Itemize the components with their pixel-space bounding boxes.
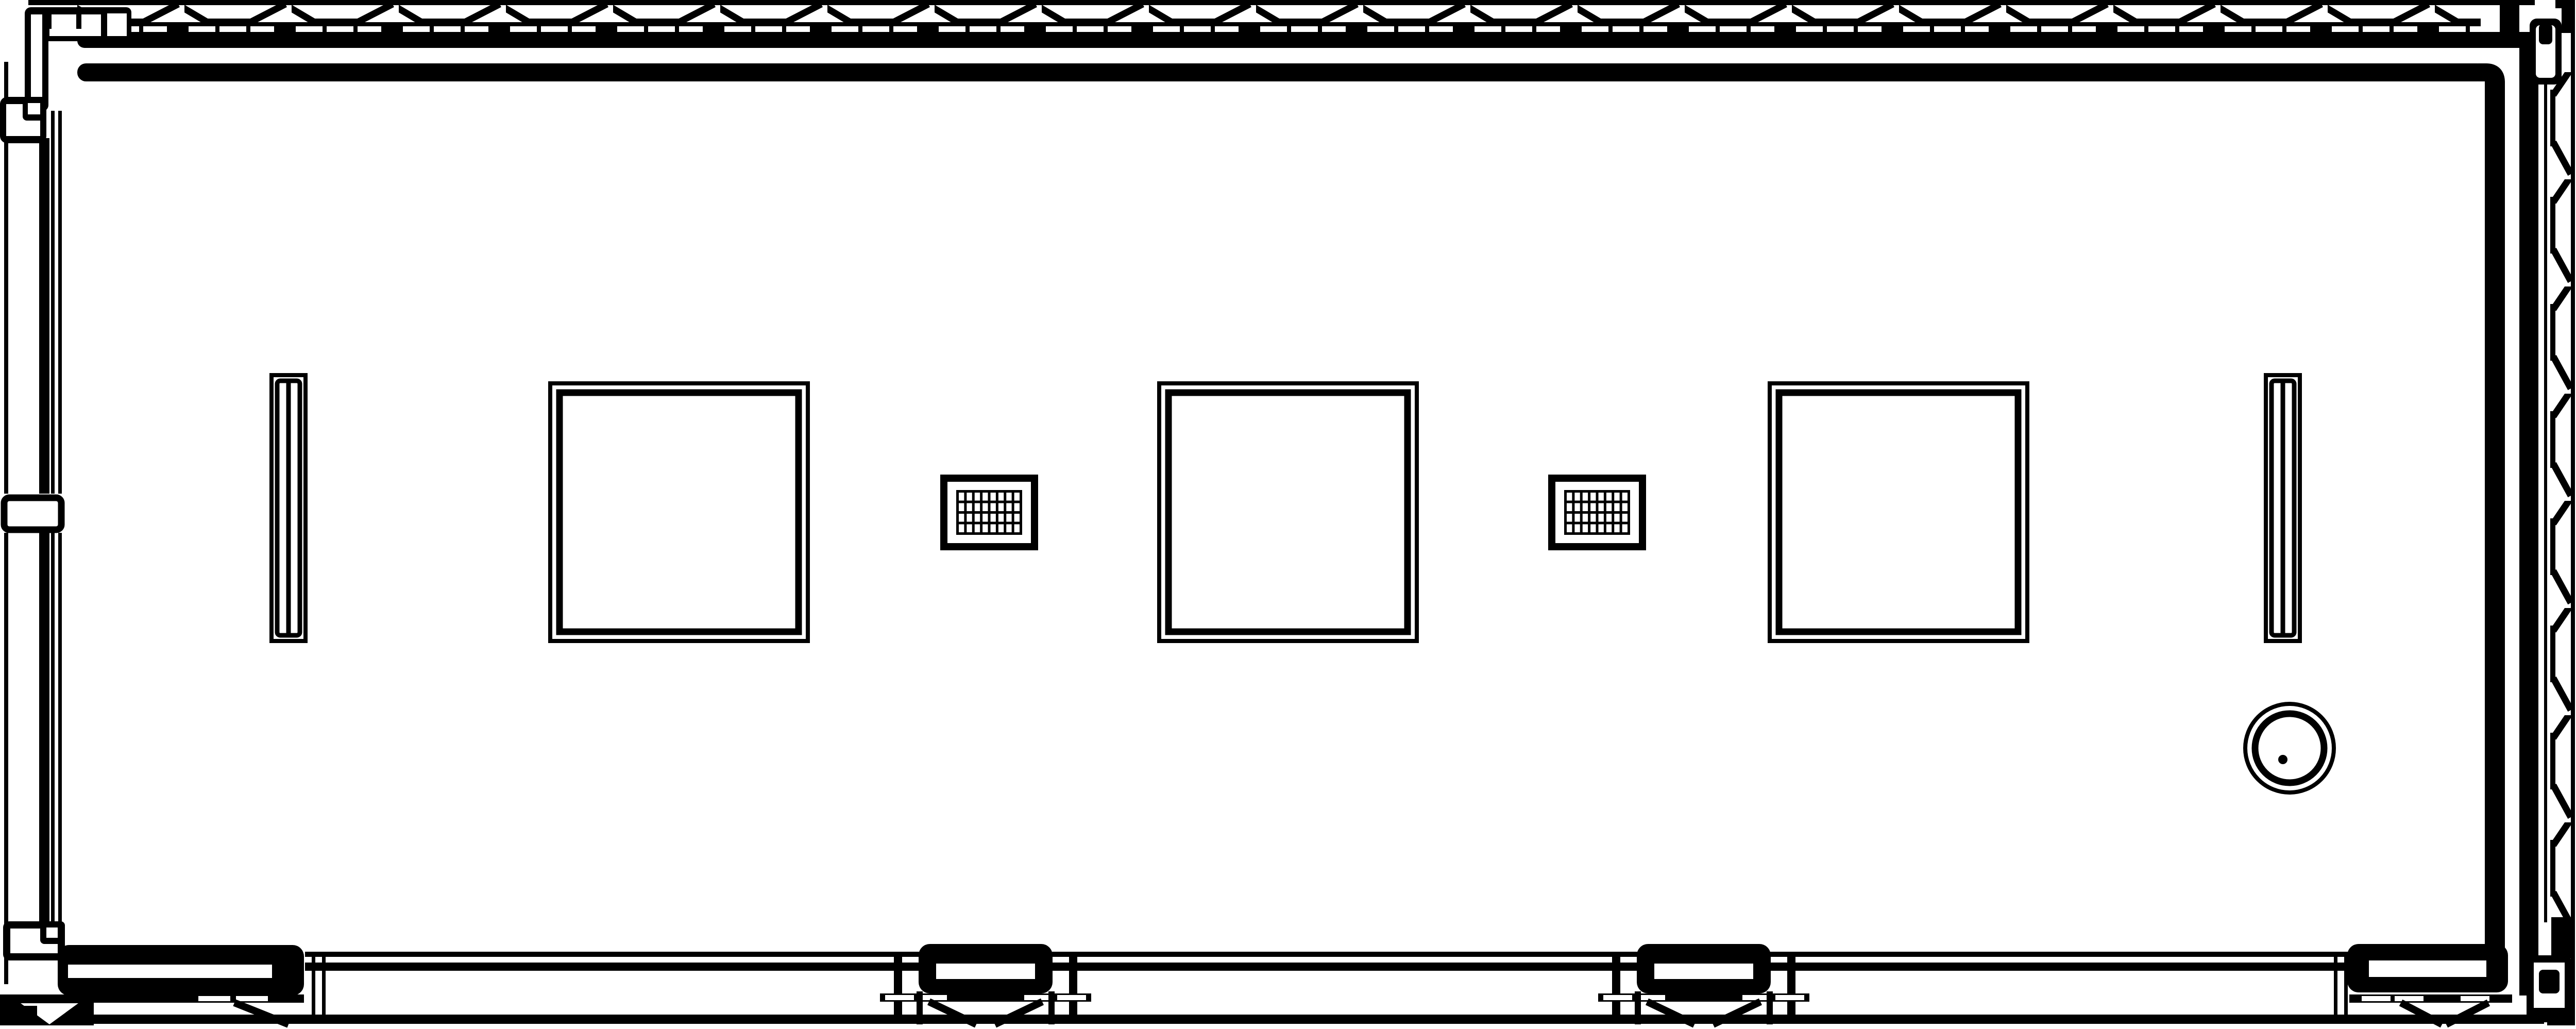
light-fixture-1 bbox=[272, 375, 306, 641]
paper-background bbox=[0, 0, 2576, 1029]
vent-grille-1 bbox=[944, 478, 1035, 547]
top-interior-wall-line bbox=[77, 63, 2486, 81]
light-fixture-2 bbox=[2266, 375, 2300, 641]
right-interior-wall-line bbox=[2485, 81, 2505, 982]
wall-bracket bbox=[1, 494, 64, 533]
cad-canvas bbox=[0, 0, 2576, 1029]
right-corrugated-wall bbox=[2485, 0, 2575, 1023]
container-roof-plan-drawing bbox=[0, 0, 2576, 1029]
vent-grille-2 bbox=[1552, 478, 1642, 547]
right-rail bbox=[2519, 41, 2538, 996]
top-rail bbox=[77, 32, 2543, 48]
